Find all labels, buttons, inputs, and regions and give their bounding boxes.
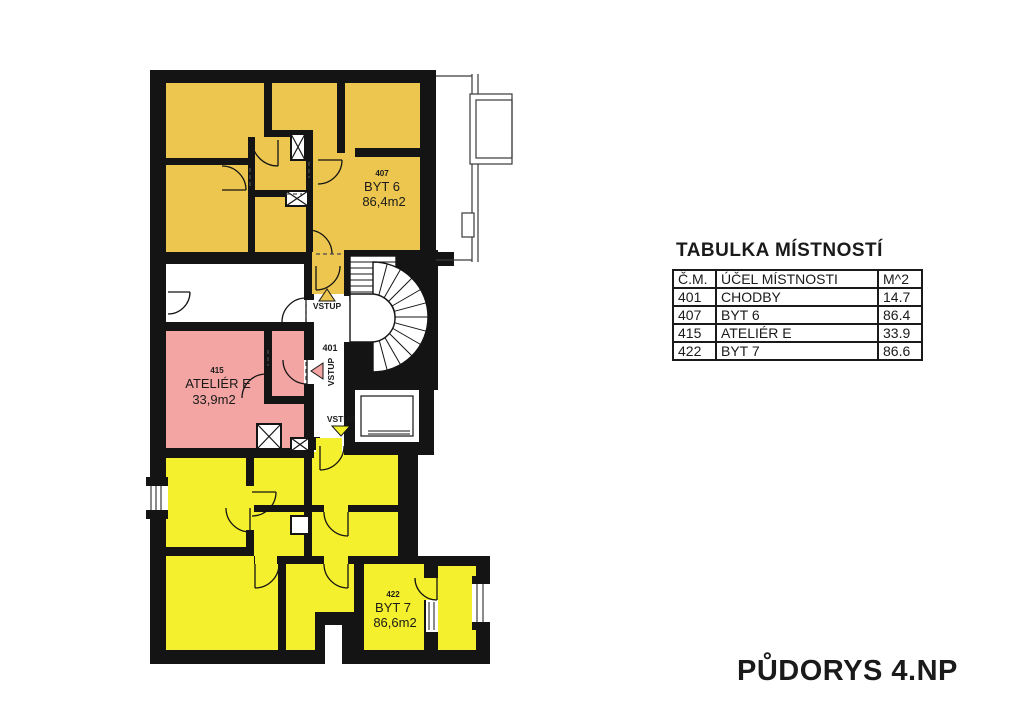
table-row: 407 BYT 6 86.4 (673, 306, 922, 324)
floor-plan-drawing: VSTUP VSTUP VSTUP 407 BYT 6 86,4m2 415 A… (0, 0, 1024, 724)
byt7-number: 422 (386, 590, 400, 599)
table-row: 415 ATELIÉR E 33.9 (673, 324, 922, 342)
header-num: Č.M. (673, 270, 716, 288)
table-row: 422 BYT 7 86.6 (673, 342, 922, 360)
rooms-table-title: TABULKA MÍSTNOSTÍ (676, 240, 923, 262)
cell-area: 86.6 (878, 342, 922, 360)
door-opening (255, 556, 277, 564)
cell-num: 407 (673, 306, 716, 324)
cell-area: 86.4 (878, 306, 922, 324)
door-arc (168, 292, 190, 314)
atelier-number: 415 (210, 366, 224, 375)
drawing-title: PŮDORYS 4.NP (737, 655, 958, 688)
cell-purpose: CHODBY (716, 288, 878, 306)
table-row: 401 CHODBY 14.7 (673, 288, 922, 306)
floor-plan-sheet: VSTUP VSTUP VSTUP 407 BYT 6 86,4m2 415 A… (0, 0, 1024, 724)
cell-num: 422 (673, 342, 716, 360)
wall-segment (355, 148, 434, 157)
window-gap (472, 576, 490, 630)
terrace-outline (436, 74, 512, 262)
header-area: M^2 (878, 270, 922, 288)
byt7-name: BYT 7 (375, 600, 411, 615)
atelier-name: ATELIÉR E (185, 376, 251, 391)
door-arc (282, 298, 306, 322)
wall-segment (166, 158, 248, 165)
entrance-label: VSTUP (326, 358, 336, 387)
stair-landing (350, 294, 395, 342)
wall-segment (337, 83, 345, 153)
rooms-table: Č.M. ÚČEL MÍSTNOSTI M^2 401 CHODBY 14.7 … (672, 269, 923, 361)
door-opening (324, 505, 348, 512)
wall-segment (264, 396, 312, 404)
terrace-detail-box (462, 213, 474, 237)
entrance-atelier: VSTUP (311, 358, 336, 387)
facade-recess (325, 625, 342, 668)
cell-purpose: BYT 6 (716, 306, 878, 324)
wall-segment (150, 70, 166, 664)
header-purpose: ÚČEL MÍSTNOSTI (716, 270, 878, 288)
atelier-area: 33,9m2 (192, 392, 235, 407)
shaft-box-icon (291, 516, 309, 534)
window-jamb (472, 622, 490, 630)
byt6-name: BYT 6 (364, 179, 400, 194)
corridor-number: 401 (322, 343, 337, 353)
byt6-area: 86,4m2 (362, 194, 405, 209)
cell-purpose: BYT 7 (716, 342, 878, 360)
door-opening (324, 556, 348, 564)
wall-segment (150, 70, 436, 83)
wall-segment (420, 70, 436, 262)
elevator (354, 389, 420, 443)
cell-num: 415 (673, 324, 716, 342)
window-right (472, 576, 490, 630)
byt7-area: 86,6m2 (373, 615, 416, 630)
wall-segment (438, 252, 454, 266)
entrance-label: VSTUP (313, 301, 342, 311)
window-jamb (146, 477, 168, 486)
wall-segment (150, 322, 312, 331)
cell-area: 33.9 (878, 324, 922, 342)
cell-area: 14.7 (878, 288, 922, 306)
wall-segment (150, 547, 254, 556)
window-jamb (146, 510, 168, 519)
byt6-number: 407 (375, 169, 389, 178)
window-gap (426, 600, 438, 632)
wall-segment (264, 331, 272, 403)
wall-segment (150, 448, 312, 458)
entrance-label: VSTUP (327, 414, 356, 424)
room-byt6-fill (158, 76, 430, 258)
rooms-table-block: TABULKA MÍSTNOSTÍ Č.M. ÚČEL MÍSTNOSTI M^… (672, 240, 923, 361)
wall-segment (264, 70, 272, 134)
window-left (146, 477, 168, 519)
elevator-car (361, 396, 413, 436)
cell-purpose: ATELIÉR E (716, 324, 878, 342)
cell-num: 401 (673, 288, 716, 306)
window-jamb (472, 576, 490, 584)
table-header-row: Č.M. ÚČEL MÍSTNOSTI M^2 (673, 270, 922, 288)
window-interior (426, 600, 438, 632)
wall-segment (278, 556, 286, 652)
